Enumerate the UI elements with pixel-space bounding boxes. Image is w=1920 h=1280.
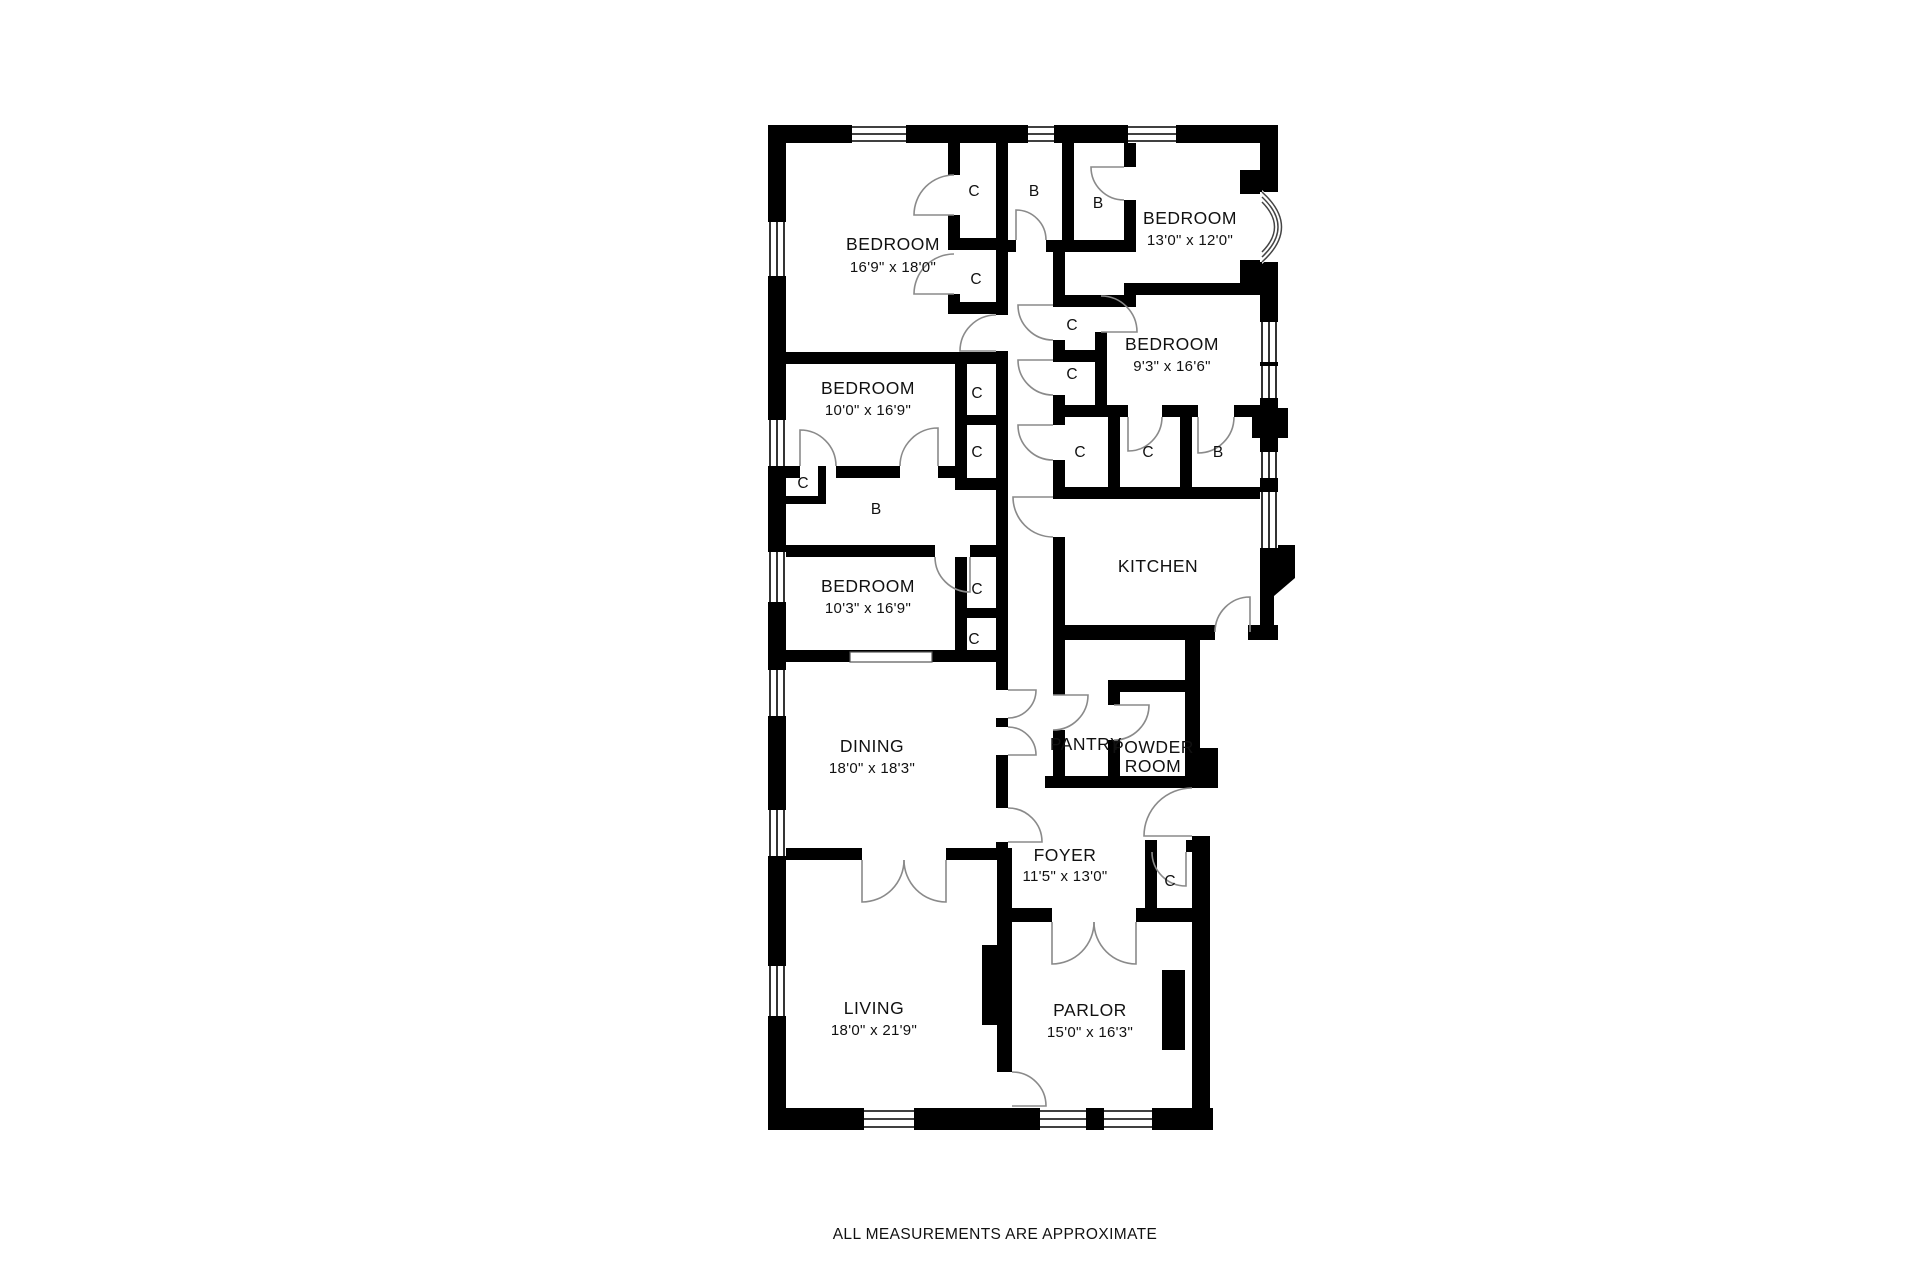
bath-marker: B <box>871 501 881 518</box>
window <box>1260 366 1278 398</box>
window <box>1260 322 1278 362</box>
closet-marker: C <box>1066 366 1077 383</box>
room-label-foyer: FOYER <box>1034 845 1097 865</box>
window <box>1128 125 1176 143</box>
room-label-bedroom-right: BEDROOM <box>1125 334 1219 354</box>
entry-door-arc <box>1144 788 1192 836</box>
room-label-bedroom-mid-upper: BEDROOM <box>821 378 915 398</box>
door-arc <box>1018 360 1053 395</box>
bay-window <box>1260 190 1284 264</box>
window <box>768 222 786 276</box>
door-arc <box>1053 695 1088 730</box>
french-door-arc <box>862 860 904 902</box>
room-label-dining: DINING <box>840 736 904 756</box>
measurements-disclaimer: ALL MEASUREMENTS ARE APPROXIMATE <box>833 1226 1158 1243</box>
room-dims-bedroom-right: 9'3" x 16'6" <box>1133 358 1211 375</box>
cased-opening <box>850 652 932 662</box>
closet-marker: C <box>1164 873 1175 890</box>
window <box>864 1108 914 1130</box>
closet-marker: C <box>1142 444 1153 461</box>
bath-marker: B <box>1029 183 1039 200</box>
window <box>1260 492 1278 548</box>
window <box>1260 452 1278 478</box>
door-arc <box>960 315 996 351</box>
room-label-living: LIVING <box>844 998 904 1018</box>
window <box>768 966 786 1016</box>
room-label-bedroom-mid-lower: BEDROOM <box>821 576 915 596</box>
door-arc <box>1215 597 1250 632</box>
closet-marker: C <box>968 631 979 648</box>
window <box>768 670 786 716</box>
door-arc <box>1018 425 1053 460</box>
window <box>768 810 786 856</box>
room-dims-bedroom-mid-lower: 10'3" x 16'9" <box>825 600 911 617</box>
closet-marker: C <box>1074 444 1085 461</box>
window <box>768 552 786 602</box>
bath-marker: B <box>1213 444 1223 461</box>
door-arc <box>1018 305 1053 340</box>
door-arc <box>1013 497 1053 537</box>
door-arc <box>1016 210 1046 240</box>
door-arc <box>1008 690 1036 718</box>
closet-marker: C <box>971 385 982 402</box>
closet-marker: C <box>1066 317 1077 334</box>
window <box>1028 125 1054 143</box>
room-dims-bedroom-top-left: 16'9" x 18'0" <box>850 259 936 276</box>
closet-marker: C <box>970 271 981 288</box>
closet-marker: C <box>968 183 979 200</box>
closet-marker: C <box>971 581 982 598</box>
room-label-bedroom-top-right: BEDROOM <box>1143 208 1237 228</box>
window <box>852 125 906 143</box>
door-arc <box>914 175 954 215</box>
room-label-bedroom-top-left: BEDROOM <box>846 234 940 254</box>
room-dims-bedroom-mid-upper: 10'0" x 16'9" <box>825 402 911 419</box>
room-dims-foyer: 11'5" x 13'0" <box>1022 868 1107 885</box>
door-arc <box>800 430 836 466</box>
closet-marker: C <box>971 444 982 461</box>
room-dims-parlor: 15'0" x 16'3" <box>1047 1024 1133 1041</box>
french-door-arc <box>1094 922 1136 964</box>
french-door-arc <box>1052 922 1094 964</box>
window <box>1104 1108 1152 1130</box>
room-label-powder-room-line2: ROOM <box>1125 756 1181 776</box>
door-arc <box>1012 1072 1046 1106</box>
room-label-powder-room-line1: POWDER <box>1112 737 1194 757</box>
window <box>768 420 786 466</box>
window <box>1040 1108 1086 1130</box>
french-door-arc <box>904 860 946 902</box>
floor-plan-drawing: BEDROOM 16'9" x 18'0" BEDROOM 13'0" x 12… <box>0 0 1920 1280</box>
room-dims-dining: 18'0" x 18'3" <box>829 760 915 777</box>
bath-marker: B <box>1093 195 1103 212</box>
door-arc <box>1008 727 1036 755</box>
closet-marker: C <box>797 475 808 492</box>
floor-plan-page: BEDROOM 16'9" x 18'0" BEDROOM 13'0" x 12… <box>0 0 1920 1280</box>
door-arc <box>900 428 938 466</box>
door-arc <box>1008 808 1042 842</box>
room-label-parlor: PARLOR <box>1053 1000 1127 1020</box>
room-dims-living: 18'0" x 21'9" <box>831 1022 917 1039</box>
room-dims-bedroom-top-right: 13'0" x 12'0" <box>1147 232 1233 249</box>
room-label-kitchen: KITCHEN <box>1118 556 1198 576</box>
